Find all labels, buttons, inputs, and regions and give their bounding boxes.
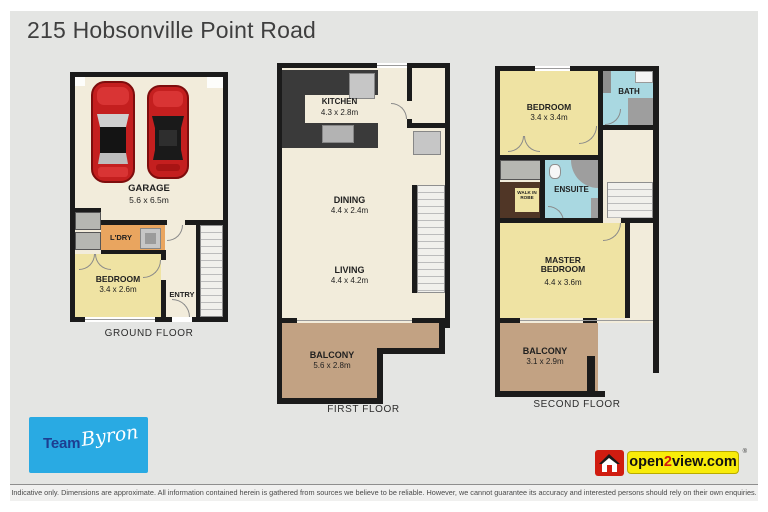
team-byron-prefix: Team xyxy=(43,435,80,452)
open2view-pre: open xyxy=(629,454,664,470)
room-dims-balcony: 5.6 x 2.8m xyxy=(287,362,377,371)
window-gap xyxy=(377,63,407,68)
page-title: 215 Hobsonville Point Road xyxy=(27,17,316,44)
closet xyxy=(75,232,101,250)
shower-icon xyxy=(628,98,653,125)
room-dims-garage: 5.6 x 6.5m xyxy=(75,196,223,205)
front-door-gap xyxy=(172,317,192,322)
wall-segment xyxy=(603,125,653,130)
room-dims-kitchen: 4.3 x 2.8m xyxy=(301,109,378,118)
car-icon xyxy=(146,84,190,180)
window-gap xyxy=(85,317,155,322)
wall-segment xyxy=(625,223,630,318)
room-label-robe: WALK IN ROBE xyxy=(515,190,539,200)
wall-segment xyxy=(282,318,297,323)
room-dims-bedroom2: 3.4 x 3.4m xyxy=(505,114,593,123)
closet xyxy=(500,160,542,180)
open2view-post: view.com xyxy=(672,454,737,470)
basin-icon xyxy=(635,71,653,83)
room-label-laundry: L'DRY xyxy=(101,234,141,242)
stove-icon xyxy=(322,125,354,143)
first-floor-plan: KITCHEN 4.3 x 2.8m DINING 4.4 x 2.4m LIV… xyxy=(277,63,450,404)
room-label-entry: ENTRY xyxy=(164,291,200,299)
room-dims-living: 4.4 x 4.2m xyxy=(297,277,402,286)
staircase xyxy=(200,225,223,317)
washer-drum-icon xyxy=(145,233,156,244)
door-gap xyxy=(161,260,166,280)
fridge-icon xyxy=(349,73,375,99)
room-label-bath: BATH xyxy=(607,88,651,97)
room-label-balcony: BALCONY xyxy=(287,351,377,361)
closet xyxy=(75,212,101,230)
garage-door-notch xyxy=(75,77,85,86)
staircase xyxy=(417,185,445,293)
room-label-living: LIVING xyxy=(297,266,402,276)
disclaimer-bar: Indicative only. Dimensions are approxim… xyxy=(10,484,758,501)
floorplan-sheet: 215 Hobsonville Point Road GARAGE xyxy=(0,0,768,512)
floor-label-first: FIRST FLOOR xyxy=(277,404,450,415)
open2view-logo: open2view.com ® xyxy=(595,449,747,477)
wall-segment xyxy=(412,318,445,323)
room-dims-balcony2: 3.1 x 2.9m xyxy=(500,358,590,367)
team-byron-logo: Team Byron xyxy=(29,417,148,473)
team-byron-script: Byron xyxy=(80,421,140,451)
wall-segment xyxy=(377,348,445,354)
car-icon xyxy=(90,80,136,184)
wall-segment xyxy=(653,66,659,373)
room-label-ensuite: ENSUITE xyxy=(545,186,598,195)
floor-label-second: SECOND FLOOR xyxy=(495,399,659,410)
staircase xyxy=(607,182,653,223)
room-label-bedroom2: BEDROOM xyxy=(505,103,593,112)
wall-segment xyxy=(223,72,228,322)
floor-label-ground: GROUND FLOOR xyxy=(70,328,228,339)
door-gap xyxy=(407,101,412,119)
wall-segment xyxy=(445,63,450,328)
room-label-kitchen: KITCHEN xyxy=(301,98,378,107)
open2view-two: 2 xyxy=(664,454,672,470)
vanity-icon xyxy=(591,198,598,218)
toilet-icon xyxy=(549,164,561,179)
slider-door-line xyxy=(520,320,653,321)
ground-floor-plan: GARAGE 5.6 x 6.5m L'DRY BEDROOM 3.4 x 2.… xyxy=(70,72,228,322)
wall-segment xyxy=(377,353,383,404)
disclaimer-text: Indicative only. Dimensions are approxim… xyxy=(10,485,758,500)
second-floor-plan: BEDROOM 3.4 x 3.4m BATH WALK IN ROBE ENS… xyxy=(495,66,659,397)
room-balcony xyxy=(282,323,439,348)
room-dims-master: 4.4 x 3.6m xyxy=(523,279,603,288)
wall-segment xyxy=(407,68,412,128)
room-dims-bedroom: 3.4 x 2.6m xyxy=(75,286,161,295)
slider-door-line xyxy=(297,320,412,321)
room-label-master: MASTER BEDROOM xyxy=(523,256,603,275)
wall-segment xyxy=(495,318,520,323)
wall-segment xyxy=(277,63,450,68)
room-label-dining: DINING xyxy=(297,196,402,206)
open2view-wordmark: open2view.com xyxy=(627,451,739,474)
open2view-house-icon xyxy=(595,450,624,476)
wall-segment xyxy=(439,323,445,354)
wall-segment xyxy=(407,123,445,128)
room-label-garage: GARAGE xyxy=(75,184,223,194)
garage-door-notch xyxy=(207,77,223,88)
cupboard-icon xyxy=(413,131,441,155)
registered-mark: ® xyxy=(743,449,747,455)
room-dims-dining: 4.4 x 2.4m xyxy=(297,207,402,216)
wall-segment xyxy=(70,72,228,77)
room-label-balcony2: BALCONY xyxy=(500,347,590,357)
